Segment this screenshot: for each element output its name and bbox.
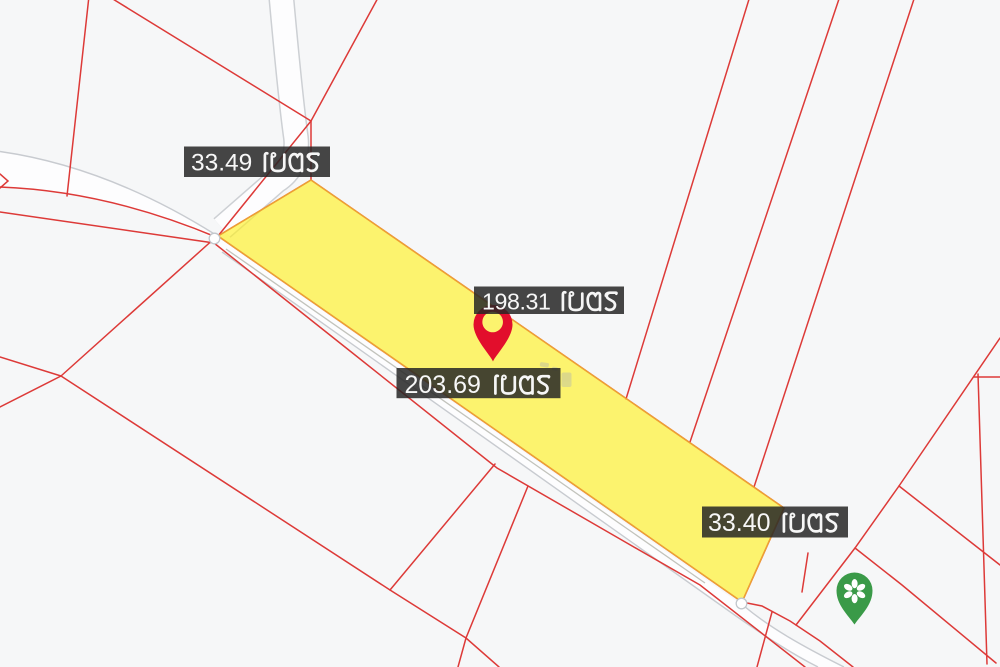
svg-text:33.49: 33.49 <box>191 150 252 177</box>
svg-text:198.31: 198.31 <box>482 289 551 315</box>
svg-text:33.40: 33.40 <box>708 509 771 537</box>
svg-text:203.69: 203.69 <box>405 371 481 399</box>
